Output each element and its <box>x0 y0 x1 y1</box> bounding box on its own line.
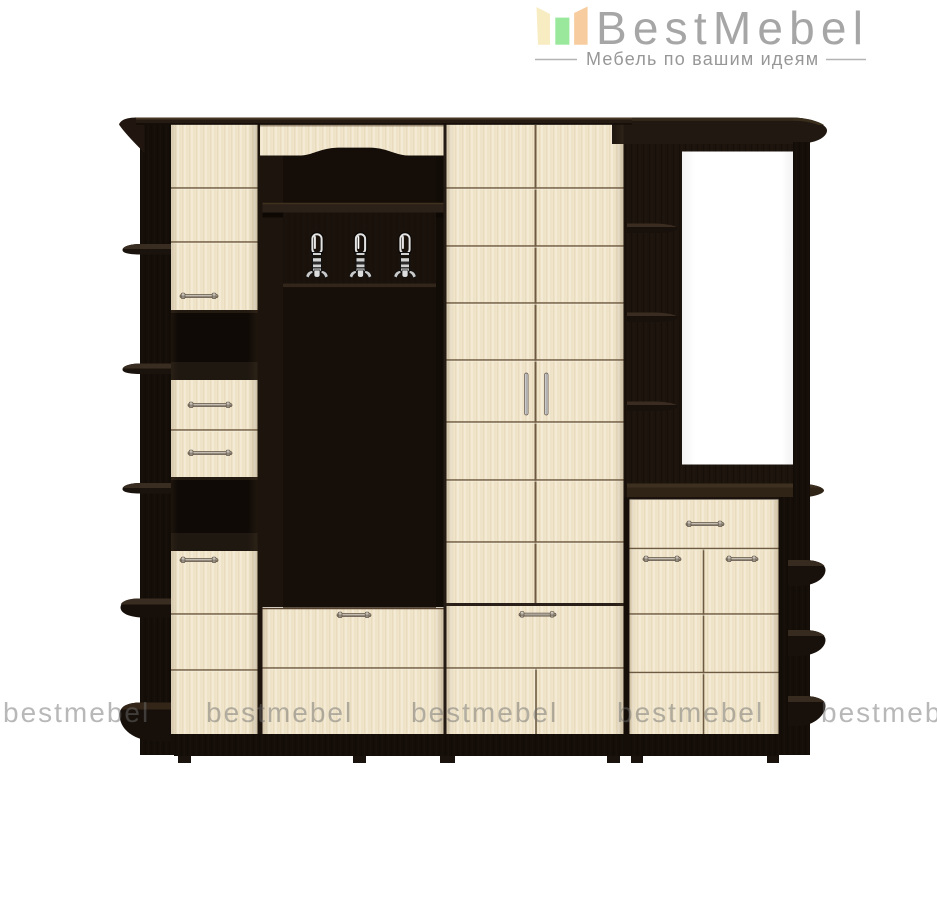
svg-text:bestmebel: bestmebel <box>821 697 937 728</box>
svg-text:bestmebel: bestmebel <box>617 697 764 728</box>
svg-text:bestmebel: bestmebel <box>206 697 353 728</box>
svg-text:bestmebel: bestmebel <box>411 697 558 728</box>
svg-text:bestmebel: bestmebel <box>3 697 150 728</box>
svg-text:Мебель по вашим идеям: Мебель по вашим идеям <box>586 49 819 69</box>
svg-text:BestMebel: BestMebel <box>596 2 869 54</box>
